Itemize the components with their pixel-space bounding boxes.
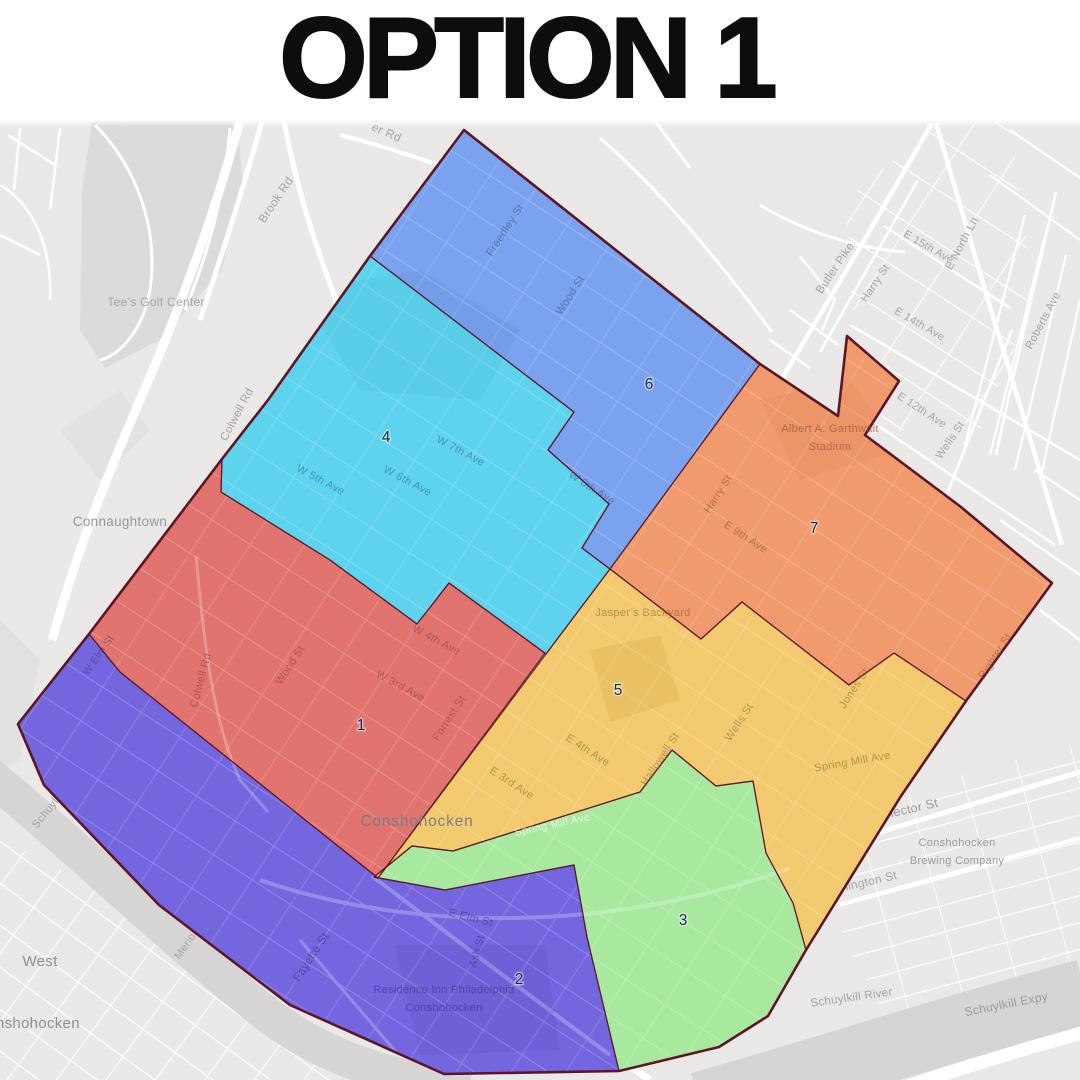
svg-text:Conshohocken: Conshohocken [0, 1015, 80, 1032]
svg-text:Residence Inn Philadelphia: Residence Inn Philadelphia [373, 984, 515, 996]
svg-text:6: 6 [645, 376, 654, 393]
svg-text:Conshohocken: Conshohocken [919, 837, 996, 849]
svg-text:Conshohocken: Conshohocken [406, 1002, 483, 1014]
svg-text:Jasper’s Backyard: Jasper’s Backyard [595, 607, 690, 619]
svg-text:3: 3 [679, 912, 688, 929]
svg-text:West: West [22, 953, 58, 970]
svg-text:Stadium: Stadium [809, 441, 851, 453]
svg-text:Brewing Company: Brewing Company [910, 855, 1005, 867]
svg-text:2: 2 [515, 971, 524, 988]
svg-text:5: 5 [614, 682, 623, 699]
svg-text:1: 1 [357, 717, 366, 734]
svg-text:Connaughtown: Connaughtown [73, 514, 167, 529]
svg-text:4: 4 [382, 429, 391, 446]
svg-text:7: 7 [810, 520, 819, 537]
svg-text:Albert A. Garthwait: Albert A. Garthwait [781, 423, 878, 435]
svg-text:Conshohocken: Conshohocken [360, 813, 473, 830]
svg-text:Tee’s Golf Center: Tee’s Golf Center [107, 295, 205, 309]
